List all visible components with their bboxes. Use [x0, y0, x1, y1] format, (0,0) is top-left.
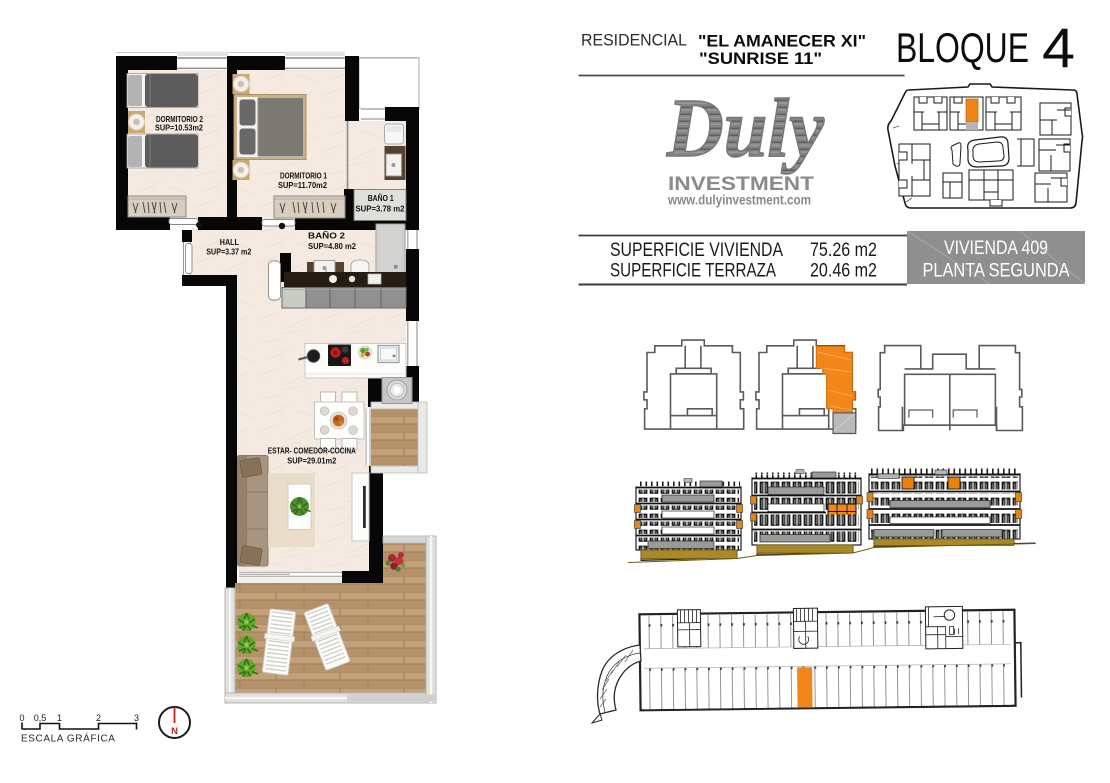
svg-text:0: 0 — [19, 713, 24, 723]
svg-text:SUP=4.80 m2: SUP=4.80 m2 — [308, 241, 356, 251]
svg-text:VIVIENDA 409: VIVIENDA 409 — [944, 237, 1048, 259]
svg-text:3: 3 — [134, 713, 139, 723]
svg-text:"SUNRISE 11": "SUNRISE 11" — [699, 49, 822, 68]
svg-text:HALL: HALL — [220, 237, 239, 247]
svg-text:SUP=10.53m2: SUP=10.53m2 — [155, 123, 203, 133]
svg-text:0,5: 0,5 — [34, 713, 47, 723]
svg-text:ESCALA GRÁFICA: ESCALA GRÁFICA — [21, 732, 116, 745]
svg-text:SUP=3.37 m2: SUP=3.37 m2 — [206, 247, 251, 257]
svg-text:SUP=29.01m2: SUP=29.01m2 — [287, 456, 336, 466]
svg-text:www.dulyinvestment.com: www.dulyinvestment.com — [667, 193, 811, 208]
svg-text:Duly: Duly — [666, 82, 825, 175]
svg-text:2: 2 — [96, 713, 101, 723]
svg-text:SUP=11.70m2: SUP=11.70m2 — [278, 180, 327, 190]
svg-text:ESTAR- COMEDOR-COCINA: ESTAR- COMEDOR-COCINA — [268, 446, 356, 456]
svg-text:"EL AMANECER XI": "EL AMANECER XI" — [698, 32, 866, 51]
svg-text:BAÑO 2: BAÑO 2 — [308, 231, 345, 241]
svg-text:20.46 m2: 20.46 m2 — [810, 260, 877, 282]
svg-text:4: 4 — [1042, 16, 1075, 79]
svg-text:N: N — [171, 726, 178, 737]
svg-text:SUPERFICIE TERRAZA: SUPERFICIE TERRAZA — [610, 260, 776, 282]
svg-text:1: 1 — [57, 713, 62, 723]
svg-text:RESIDENCIAL: RESIDENCIAL — [581, 32, 687, 50]
svg-text:SUP=3.78 m2: SUP=3.78 m2 — [356, 204, 405, 214]
svg-text:BAÑO 1: BAÑO 1 — [368, 193, 394, 203]
svg-text:75.26 m2: 75.26 m2 — [810, 239, 877, 261]
svg-text:SUPERFICIE VIVIENDA: SUPERFICIE VIVIENDA — [610, 239, 783, 261]
svg-text:DORMITORIO 1: DORMITORIO 1 — [280, 170, 327, 180]
svg-text:PLANTA SEGUNDA: PLANTA SEGUNDA — [923, 260, 1070, 282]
svg-text:BLOQUE: BLOQUE — [896, 24, 1029, 71]
